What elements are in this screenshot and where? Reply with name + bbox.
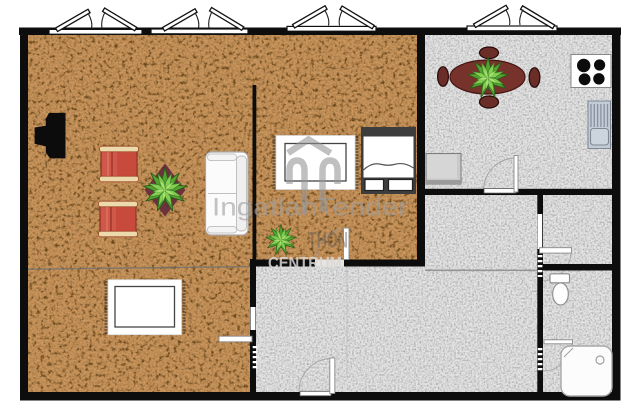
svg-text:IngatlanTender: IngatlanTender bbox=[212, 194, 408, 222]
svg-text:CENTRUM: CENTRUM bbox=[268, 254, 342, 273]
svg-text:THON: THON bbox=[308, 228, 348, 253]
